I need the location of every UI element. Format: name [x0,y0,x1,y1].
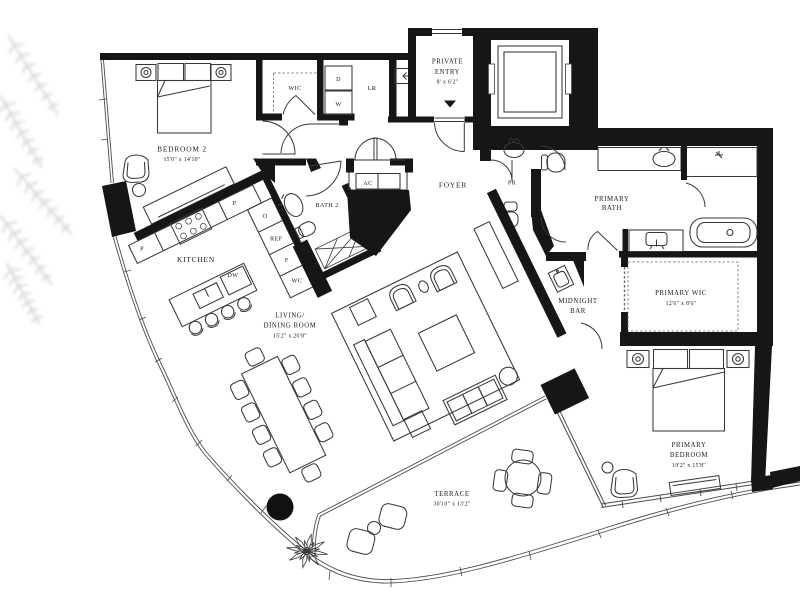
svg-text:DW: DW [227,272,238,279]
svg-text:WC: WC [291,278,302,285]
svg-text:BAR: BAR [570,308,586,315]
svg-text:AC: AC [363,180,372,187]
svg-text:P: P [140,245,144,252]
svg-text:BATH: BATH [602,205,622,212]
svg-text:F: F [285,257,289,264]
svg-text:PRIMARY: PRIMARY [595,196,630,203]
svg-text:DINING ROOM: DINING ROOM [264,323,317,330]
svg-text:PRIVATE: PRIVATE [432,59,463,66]
svg-text:BATH 2: BATH 2 [315,202,338,209]
svg-text:PRIMARY WIC: PRIMARY WIC [655,290,707,297]
svg-text:D: D [336,76,341,83]
svg-text:12'6" x 8'6": 12'6" x 8'6" [666,301,697,307]
svg-text:BEDROOM 2: BEDROOM 2 [157,145,207,154]
svg-text:30'10" x 13'2": 30'10" x 13'2" [433,502,470,508]
svg-text:PRIMARY: PRIMARY [672,442,707,449]
svg-text:W: W [335,101,341,108]
svg-text:8' x 6'2": 8' x 6'2" [437,80,459,86]
svg-text:LR: LR [368,85,377,92]
svg-text:19'2" x 15'8": 19'2" x 15'8" [672,463,706,469]
svg-text:O: O [263,213,268,220]
svg-text:KITCHEN: KITCHEN [177,255,215,264]
svg-text:REF: REF [270,235,283,242]
svg-text:ENTRY: ENTRY [435,69,460,76]
svg-text:LIVING/: LIVING/ [275,313,305,320]
svg-text:WIC: WIC [288,85,301,92]
svg-text:TERRACE: TERRACE [434,491,469,498]
svg-text:MIDNIGHT: MIDNIGHT [558,298,597,305]
svg-text:FOYER: FOYER [439,181,467,190]
svg-text:15'2" x 20'8": 15'2" x 20'8" [273,334,307,340]
svg-text:15'0" x 14'10": 15'0" x 14'10" [163,157,200,163]
svg-text:BEDROOM: BEDROOM [670,452,708,459]
svg-text:P: P [233,200,237,207]
